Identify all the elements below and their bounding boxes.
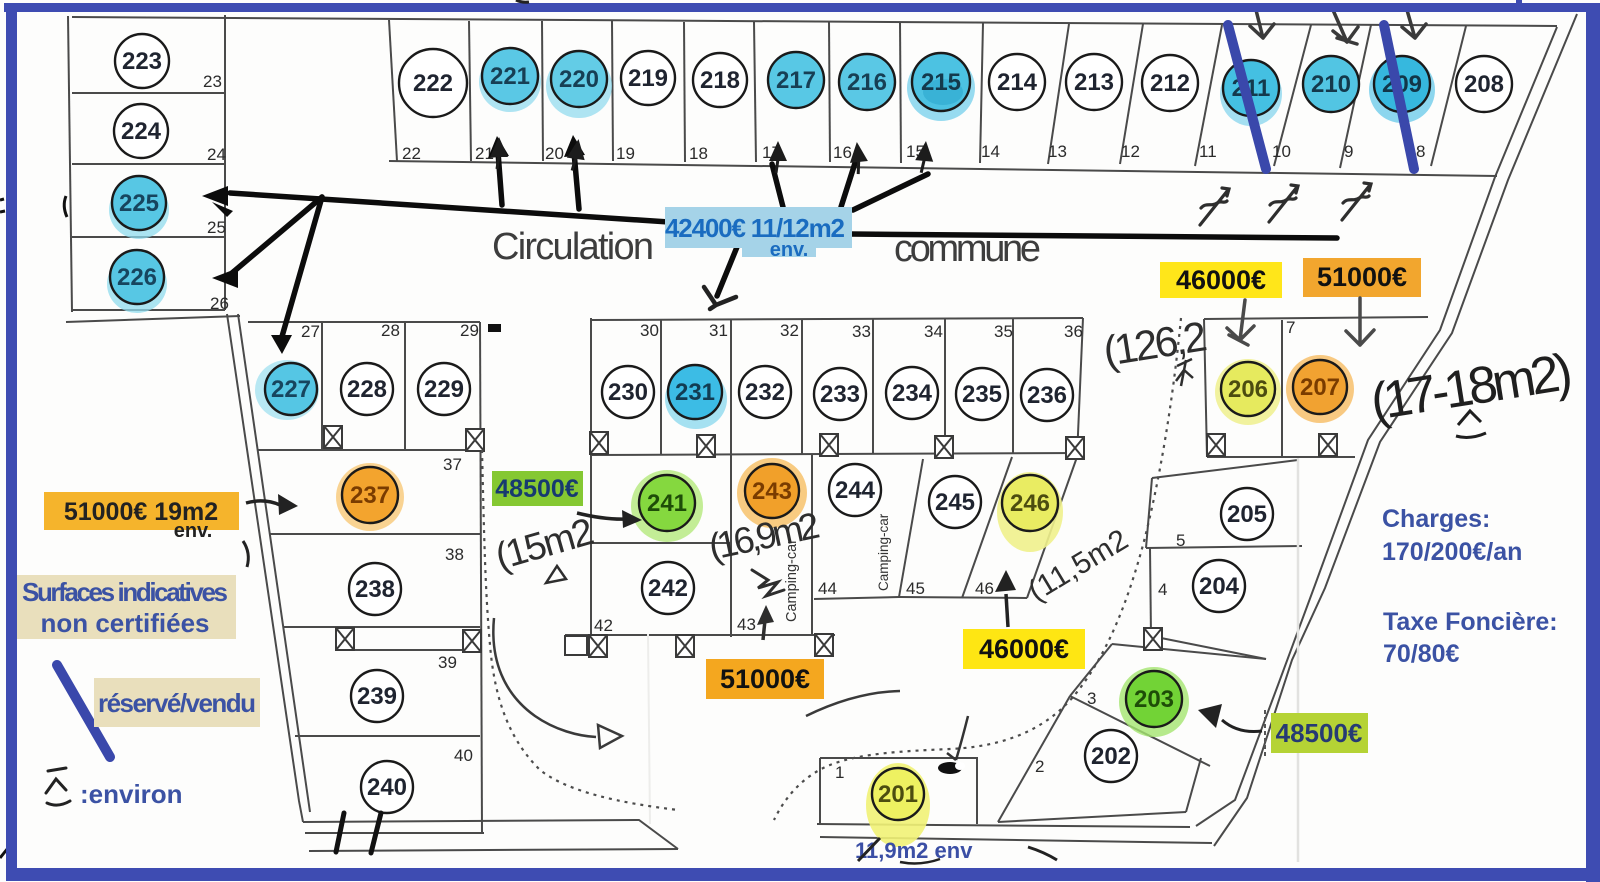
svg-text:24: 24 [207, 145, 226, 164]
svg-text:212: 212 [1150, 70, 1190, 97]
svg-text:8: 8 [1416, 142, 1425, 161]
svg-text:206: 206 [1228, 376, 1268, 403]
svg-text:env.: env. [770, 239, 809, 261]
svg-text:commune: commune [894, 228, 1041, 270]
svg-text:48500€: 48500€ [495, 475, 579, 503]
svg-text:42400€ 11/12m2: 42400€ 11/12m2 [665, 213, 845, 243]
svg-text:242: 242 [648, 575, 688, 602]
svg-text:240: 240 [367, 774, 407, 801]
svg-text:43: 43 [737, 615, 756, 634]
svg-text:3: 3 [1087, 689, 1096, 708]
svg-text:219: 219 [628, 65, 668, 92]
svg-text:210: 210 [1311, 71, 1351, 98]
svg-text:46000€: 46000€ [1176, 265, 1266, 295]
svg-text:4: 4 [1158, 580, 1167, 599]
svg-text:Taxe Foncière:: Taxe Foncière: [1383, 608, 1558, 636]
svg-text:31: 31 [709, 321, 728, 340]
svg-text:229: 229 [424, 376, 464, 403]
svg-text:222: 222 [413, 70, 453, 97]
svg-text:35: 35 [994, 322, 1013, 341]
svg-text:1: 1 [835, 763, 844, 782]
svg-text:217: 217 [776, 67, 816, 94]
svg-text:env.: env. [174, 520, 213, 542]
svg-text:38: 38 [445, 545, 464, 564]
svg-text:7: 7 [1286, 318, 1295, 337]
svg-text:19: 19 [616, 144, 635, 163]
svg-text:227: 227 [271, 376, 311, 403]
svg-text:233: 233 [820, 381, 860, 408]
svg-text:28: 28 [381, 321, 400, 340]
svg-text:réservé/vendu: réservé/vendu [98, 688, 256, 718]
svg-text:37: 37 [443, 455, 462, 474]
svg-text:205: 205 [1227, 501, 1267, 528]
svg-text:Camping-car: Camping-car [876, 513, 891, 591]
svg-text:36: 36 [1064, 322, 1083, 341]
svg-text:216: 216 [847, 69, 887, 96]
svg-text:237: 237 [350, 482, 390, 509]
svg-text:201: 201 [878, 781, 918, 808]
svg-text:2: 2 [1035, 757, 1044, 776]
svg-text:Surfaces indicatives: Surfaces indicatives [22, 577, 228, 607]
svg-text:202: 202 [1091, 743, 1131, 770]
svg-text:221: 221 [490, 63, 530, 90]
svg-text:241: 241 [647, 490, 687, 517]
svg-text:12: 12 [1121, 142, 1140, 161]
svg-text:9: 9 [1344, 142, 1353, 161]
svg-text:232: 232 [745, 379, 785, 406]
svg-text:238: 238 [355, 576, 395, 603]
svg-text:51000€: 51000€ [1317, 262, 1407, 292]
svg-text:244: 244 [835, 477, 876, 504]
svg-text:16: 16 [833, 143, 852, 162]
svg-text:13: 13 [1048, 142, 1067, 161]
svg-text:42: 42 [594, 616, 613, 635]
svg-text:23: 23 [203, 72, 222, 91]
svg-text::environ: :environ [80, 779, 183, 809]
svg-text:203: 203 [1134, 686, 1174, 713]
svg-text:46000€: 46000€ [979, 634, 1069, 664]
svg-text:34: 34 [924, 322, 943, 341]
svg-text:26: 26 [210, 294, 229, 313]
svg-text:48500€: 48500€ [1276, 718, 1363, 748]
svg-text:225: 225 [119, 190, 159, 217]
svg-text:25: 25 [207, 218, 226, 237]
svg-text:14: 14 [981, 142, 1000, 161]
svg-text:11,9m2 env: 11,9m2 env [855, 838, 973, 863]
svg-text:33: 33 [852, 322, 871, 341]
svg-text:45: 45 [906, 579, 925, 598]
svg-text:207: 207 [1300, 374, 1340, 401]
svg-text:20: 20 [545, 144, 564, 163]
svg-text:10: 10 [1272, 142, 1291, 161]
svg-text:29: 29 [460, 321, 479, 340]
svg-text:243: 243 [752, 478, 792, 505]
svg-text:245: 245 [935, 489, 975, 516]
svg-text:27: 27 [301, 322, 320, 341]
svg-text:230: 230 [608, 379, 648, 406]
svg-text:204: 204 [1199, 573, 1240, 600]
svg-text:220: 220 [559, 66, 599, 93]
svg-text:236: 236 [1027, 382, 1067, 409]
svg-text:231: 231 [675, 379, 715, 406]
svg-text:218: 218 [700, 67, 740, 94]
svg-text:22: 22 [402, 144, 421, 163]
svg-text:32: 32 [780, 321, 799, 340]
svg-text:18: 18 [689, 144, 708, 163]
svg-text:Charges:: Charges: [1382, 505, 1490, 533]
svg-text:11: 11 [1199, 142, 1217, 161]
svg-text:40: 40 [454, 746, 473, 765]
svg-text:223: 223 [122, 48, 162, 75]
svg-text:non certifiées: non certifiées [40, 608, 209, 638]
svg-text:51000€: 51000€ [720, 664, 810, 694]
svg-text:214: 214 [997, 69, 1038, 96]
svg-text:235: 235 [962, 381, 1002, 408]
svg-text:213: 213 [1074, 69, 1114, 96]
svg-text:Circulation: Circulation [492, 226, 654, 268]
svg-text:39: 39 [438, 653, 457, 672]
svg-text:228: 228 [347, 376, 387, 403]
svg-text:224: 224 [121, 118, 162, 145]
svg-text:239: 239 [357, 683, 397, 710]
svg-text:215: 215 [921, 69, 961, 96]
svg-text:208: 208 [1464, 71, 1504, 98]
svg-text:44: 44 [818, 579, 837, 598]
svg-text:170/200€/an: 170/200€/an [1382, 538, 1522, 566]
svg-text:46: 46 [975, 579, 994, 598]
svg-text:30: 30 [640, 321, 659, 340]
svg-text:246: 246 [1010, 490, 1050, 517]
svg-text:5: 5 [1176, 531, 1185, 550]
svg-text:234: 234 [892, 380, 933, 407]
svg-text:70/80€: 70/80€ [1383, 640, 1460, 668]
svg-text:226: 226 [117, 264, 157, 291]
